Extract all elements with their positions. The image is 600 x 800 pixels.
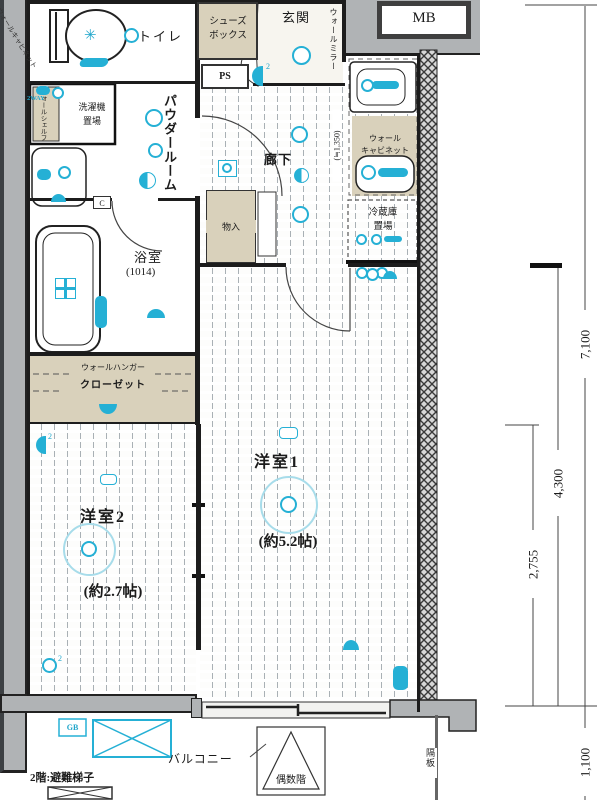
escape-ladder-label: 2階:避難梯子 (30, 769, 94, 785)
even-floor-label: 偶数階 (261, 771, 321, 786)
washer-outlet-icon (52, 87, 64, 99)
partition-label: 隔板 (424, 748, 437, 778)
dimension-lines (505, 5, 597, 800)
room2-sensor-icon (100, 474, 117, 485)
room1-label: 洋室1 (254, 448, 300, 472)
room1-sensor-icon (279, 427, 298, 439)
room2-outlet2-icon (42, 658, 57, 673)
fridge-label-2: 置場 (352, 218, 414, 232)
shoebox-label-2: ボックス (200, 27, 256, 41)
entrance-light-icon (292, 46, 311, 65)
washer-label-2: 置場 (62, 114, 122, 127)
closet-label-2: クローゼット (63, 376, 163, 391)
kitchen-cab-label-2: キャビネット (350, 145, 420, 156)
room2-size-label: (約2.7帖) (58, 580, 168, 601)
washer-faucet-icon (36, 86, 50, 95)
powder-light2-icon (148, 143, 163, 158)
hall-light-icon (291, 126, 308, 143)
washer-label-1: 洗濯機 (62, 100, 122, 113)
hall-fan-icon (294, 168, 309, 183)
closet-label-1: ウォールハンガー (68, 362, 158, 373)
paper-holder-icon (124, 28, 139, 43)
mb-label: MB (377, 1, 471, 35)
powder-room-label: パウダールーム (160, 94, 179, 224)
shoebox-label-1: シューズ (200, 13, 256, 27)
sliding-window (202, 702, 390, 718)
two-way-label: 2WAY (27, 95, 45, 102)
hall-light2-icon (292, 206, 309, 223)
balcony-label: バルコニー (168, 750, 233, 767)
storage-door-leaf (258, 192, 276, 256)
basin-drain-icon (58, 166, 71, 179)
bath-label: 浴室 (134, 247, 162, 266)
wall-top (27, 0, 345, 4)
storage-label: 物入 (206, 220, 256, 233)
gb-label: GB (59, 719, 86, 736)
fridge-label-1: 冷蔵庫 (352, 204, 414, 218)
c-mark-box: C (93, 196, 111, 209)
cooktop-burner-icon (361, 165, 376, 180)
toilet-washlet-icon: ✳ (84, 26, 97, 45)
kitchen-cab-label-1: ウォール (354, 133, 416, 144)
bath-faucet-icon (95, 296, 107, 328)
ps-label: PS (201, 64, 249, 89)
floor-plan: C トイレ ウォールキャビネット シューズ ボックス 玄関 ウォールミラー PS… (0, 0, 600, 800)
hallway-label: 廊下 (264, 149, 292, 168)
dim-balcony-depth: 1,100 (578, 733, 593, 793)
fridge-outlet-icon (356, 234, 367, 245)
room-divider-wall (196, 424, 201, 650)
wall-mirror-label: ウォールミラー (328, 8, 339, 114)
powder-light-icon (145, 109, 163, 127)
hall-dim-label: (≒1,350) (333, 110, 342, 182)
toilet-label: トイレ (138, 26, 183, 45)
entrance-label: 玄関 (282, 7, 310, 26)
dim-room2-height: 2,755 (526, 535, 541, 595)
balcony-wall-right (390, 700, 476, 731)
room1-light-icon (280, 496, 297, 513)
outlet-count: 2 (266, 62, 270, 71)
bath-jet-icon (55, 278, 76, 299)
exterior-hatched-wall (420, 50, 437, 712)
dim-total-height: 7,100 (578, 315, 593, 375)
toilet-lid-icon (78, 58, 109, 67)
dim-room1-height: 4,300 (551, 454, 566, 514)
room2-light-icon (81, 541, 97, 557)
wall-left (27, 0, 30, 696)
powder-fan-icon (139, 172, 156, 189)
c-mark: C (99, 199, 104, 208)
basin-faucet-icon (37, 169, 51, 180)
balcony-faucet-icon (393, 666, 408, 690)
bath-size-label: (1014) (126, 266, 155, 278)
